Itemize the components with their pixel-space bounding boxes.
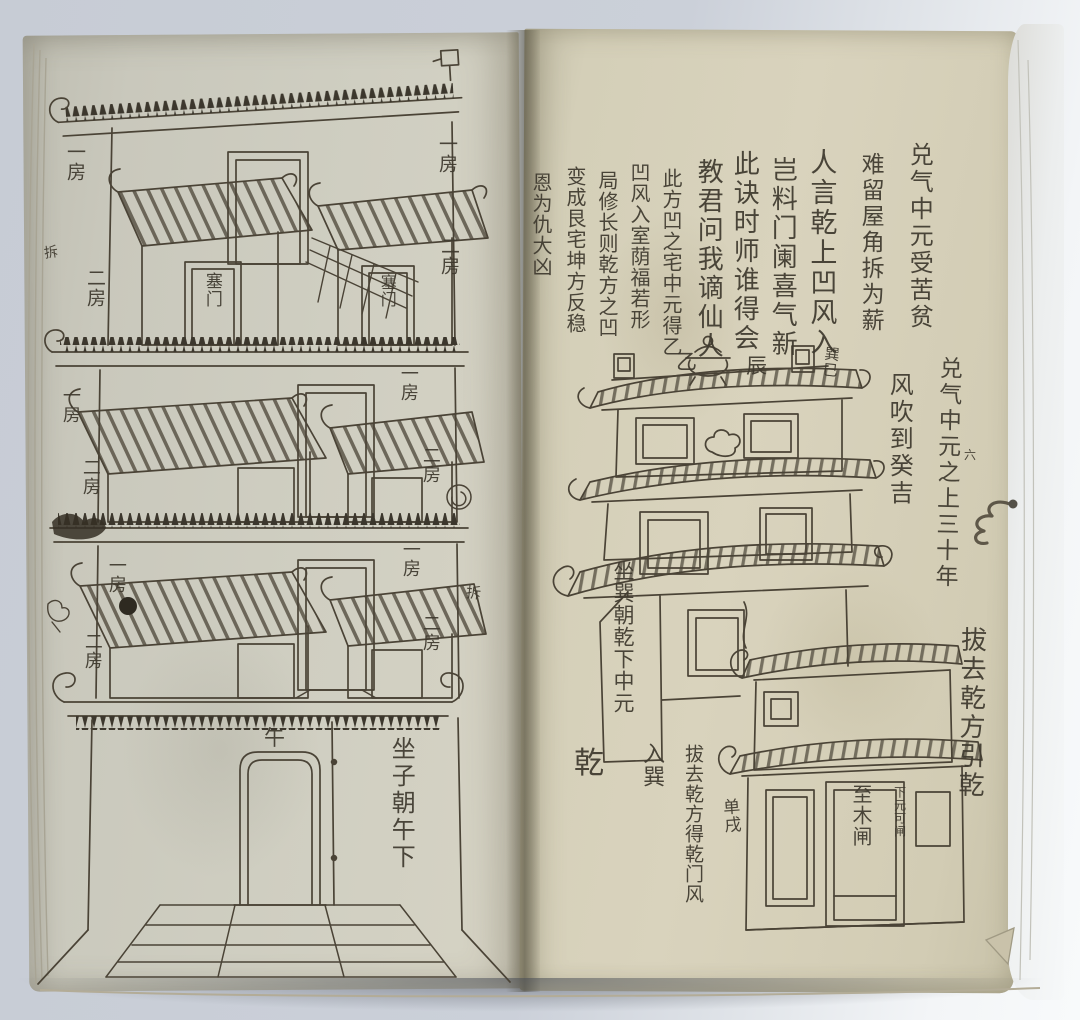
ridge-label-chen: 辰: [746, 350, 767, 380]
floor1-left-door-label: 塞门: [202, 272, 220, 308]
wooden-gate-door-label: 至木闸: [850, 784, 871, 847]
sitting-zi-facing-wu-caption: 坐子朝午下: [388, 736, 413, 871]
note-column: 拔去乾方得乾门风: [682, 744, 702, 904]
ridge-label-yi: 乙: [676, 346, 697, 376]
door-side-label: 单戌: [719, 797, 739, 834]
verse-column-5: 此方凹之宅中元得乙: [660, 168, 681, 357]
verse-column-9: 恩为仇大凶: [530, 172, 551, 277]
floor1-left-top-label: 一房: [64, 142, 84, 182]
gate-wu-label: 午: [264, 722, 285, 752]
margin-mark-six: 六: [964, 446, 976, 463]
floor1-right-side-label: 二房: [438, 236, 458, 276]
left-page-edge-stack: [28, 44, 48, 984]
right-margin-column-2: 难留屋角拆为薪: [858, 152, 882, 334]
bottom-hall: [38, 718, 510, 984]
verse-column-6: 凹风入室荫福若形: [628, 162, 649, 330]
floor2-right-side-label: 二房: [420, 446, 439, 484]
roof-band-3: [50, 513, 468, 542]
trigram-qian-label: 乾: [574, 738, 604, 782]
verse-column-1: 人言乾上凹风入: [806, 148, 834, 358]
right-margin-column-1: 兑气中元受苦贫: [906, 142, 931, 331]
left-page-drawing: [38, 50, 510, 984]
floor1-right-door-label: 塞门: [378, 274, 395, 308]
floor3-right-top-label: 一房: [400, 540, 419, 578]
floor-1-right-house: [309, 183, 488, 345]
door-note-label: 下元可闸: [893, 786, 906, 838]
floor-2: [69, 368, 484, 522]
floor3-left-top-label: 一房: [106, 556, 125, 594]
ink-blot: [119, 597, 137, 615]
pagoda-main-body: [600, 590, 848, 762]
verse-column-8: 变成艮宅坤方反稳: [564, 166, 585, 334]
enter-xun-label: 入巽: [640, 742, 663, 788]
floor-2-margin-circle: [447, 485, 471, 509]
ridge-corner-label: 巽巳: [820, 345, 839, 378]
sitting-facing-text: 坐巽朝乾下中元: [612, 560, 634, 714]
verse-column-3: 此诀时师谁得会: [730, 150, 757, 353]
right-margin-note-2: 拆: [465, 581, 482, 603]
roof-band-4: [53, 673, 463, 730]
floor3-left-side-label: 二房: [82, 632, 101, 670]
right-margin-column-5: 拔去乾方引乾: [954, 626, 984, 800]
floor3-right-side-label: 二房: [420, 614, 439, 652]
page-corner-fold: [986, 928, 1014, 964]
left-margin-note-1: 拆: [43, 241, 60, 263]
bottom-steps: [106, 905, 456, 977]
floor2-right-top-label: 一房: [398, 364, 417, 402]
margin-scribble: [48, 601, 69, 632]
bottom-gate: [234, 752, 326, 905]
verse-column-7: 局修长则乾方之凹: [596, 170, 617, 338]
manuscript-photo: 兑气中元受苦贫 难留屋角拆为薪 兑气中元之上三十年 风吹到癸吉 拔去乾方引乾 人…: [0, 0, 1080, 1020]
floor-1: [108, 122, 488, 345]
verse-column-2: 岂料门阑喜气新: [768, 156, 795, 359]
floor-2-right-house: [321, 405, 484, 522]
floor1-left-side-label: 二房: [84, 268, 104, 308]
bottom-page-edges: [40, 988, 1040, 996]
roof-band-1: [48, 50, 463, 137]
ink-smudge-right-edge: [976, 500, 1018, 544]
right-margin-column-4: 风吹到癸吉: [886, 372, 911, 507]
floor2-left-side-label: 二房: [80, 458, 99, 496]
right-page-edge-lines: [1018, 40, 1034, 980]
cloud-ornament: [705, 430, 739, 456]
floor2-left-top-label: 一房: [60, 386, 79, 424]
right-margin-column-3: 兑气中元之上三十年: [932, 356, 961, 590]
floor-1-left-house: [109, 169, 312, 345]
verse-column-4: 教君问我谪仙人: [694, 158, 721, 361]
floor1-right-top-label: 一房: [436, 134, 456, 174]
floor-2-left-house: [69, 389, 326, 522]
